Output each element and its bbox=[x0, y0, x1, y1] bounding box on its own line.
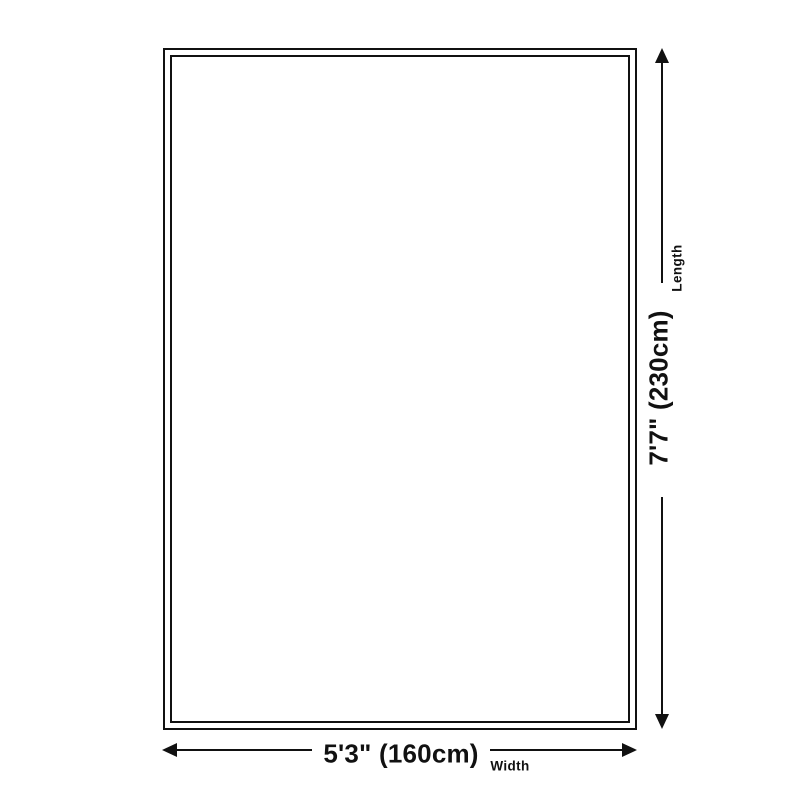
width-line-left bbox=[176, 749, 312, 751]
rug-outline bbox=[163, 48, 637, 730]
arrow-right-icon bbox=[622, 743, 637, 757]
rug-inner-outline bbox=[170, 55, 630, 723]
width-label: Width bbox=[490, 759, 529, 774]
width-line-right bbox=[490, 749, 623, 751]
length-label: Length bbox=[670, 244, 685, 291]
size-diagram: Length 7'7" (230cm) 5'3" (160cm) Width bbox=[0, 0, 800, 800]
arrow-down-icon bbox=[655, 714, 669, 729]
width-value: 5'3" (160cm) bbox=[323, 739, 478, 770]
arrow-left-icon bbox=[162, 743, 177, 757]
length-line-bottom bbox=[661, 497, 663, 716]
length-line-top bbox=[661, 61, 663, 283]
length-value: 7'7" (230cm) bbox=[644, 310, 675, 465]
